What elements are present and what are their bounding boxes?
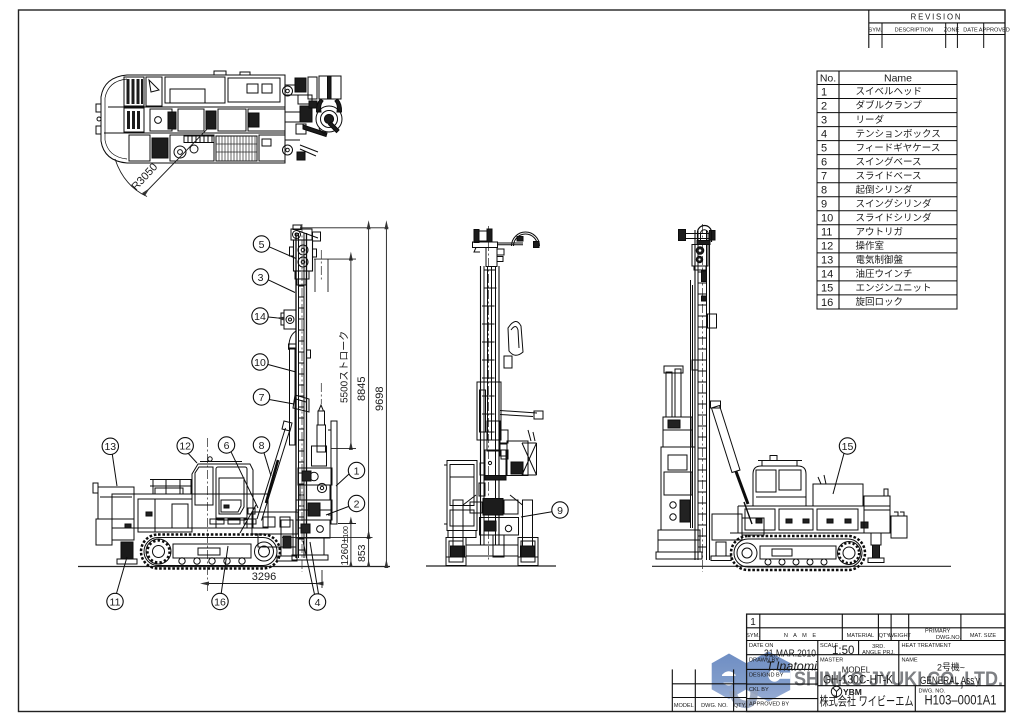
svg-text:1:50: 1:50 [832, 645, 854, 657]
svg-text:スイングベース: スイングベース [856, 156, 922, 168]
svg-text:7: 7 [259, 392, 265, 404]
svg-text:8845: 8845 [356, 377, 368, 401]
svg-text:8: 8 [259, 440, 265, 452]
svg-text:6: 6 [821, 156, 827, 168]
svg-text:12: 12 [821, 241, 833, 253]
svg-text:NAME: NAME [902, 658, 918, 664]
svg-text:14: 14 [821, 269, 833, 281]
svg-text:ANGLE PRJ.: ANGLE PRJ. [862, 650, 895, 656]
svg-text:DESCRIPTION: DESCRIPTION [895, 28, 933, 34]
svg-text:PRIMARY: PRIMARY [925, 629, 951, 635]
svg-text:10: 10 [821, 213, 833, 225]
svg-text:エンジンユニット: エンジンユニット [856, 283, 932, 294]
svg-text:スイベルヘッド: スイベルヘッド [856, 87, 923, 98]
svg-text:リーダ: リーダ [856, 114, 885, 126]
svg-text:3296: 3296 [252, 571, 276, 583]
svg-text:スイングシリンダ: スイングシリンダ [856, 198, 933, 210]
svg-text:5: 5 [259, 239, 265, 251]
svg-text:Name: Name [884, 73, 912, 85]
svg-text:5500ストローク: 5500ストローク [339, 331, 351, 403]
svg-text:スライドベース: スライドベース [856, 171, 922, 182]
svg-text:15: 15 [842, 441, 854, 453]
svg-text:HEAT TREATMENT: HEAT TREATMENT [902, 643, 952, 649]
svg-text:株式会社 ワイビーエム: 株式会社 ワイビーエム [820, 694, 914, 709]
svg-text:MAT. SIZE: MAT. SIZE [970, 633, 997, 639]
svg-text:T.Inatomi: T.Inatomi [766, 660, 818, 674]
svg-text:N A M E: N A M E [784, 633, 818, 639]
svg-text:MODEL: MODEL [842, 666, 871, 675]
svg-text:フィードギヤケース: フィードギヤケース [856, 143, 941, 154]
svg-text:4: 4 [821, 128, 827, 140]
svg-text:MODEL: MODEL [674, 703, 694, 709]
svg-text:MASTER: MASTER [820, 658, 843, 664]
svg-text:GENERAL Ass'y: GENERAL Ass'y [920, 675, 980, 687]
svg-text:16: 16 [214, 596, 226, 608]
svg-text:2号機~: 2号機~ [937, 662, 965, 674]
svg-text:No.: No. [820, 73, 836, 85]
svg-text:DWG.NO.: DWG.NO. [936, 635, 962, 641]
svg-text:13: 13 [821, 255, 833, 267]
svg-text:3: 3 [258, 272, 264, 284]
svg-text:DATE: DATE [963, 28, 978, 34]
svg-text:旋回ロック: 旋回ロック [856, 296, 904, 308]
svg-text:ダブルクランプ: ダブルクランプ [856, 100, 923, 112]
svg-text:APPROVED BY: APPROVED BY [749, 702, 789, 708]
svg-text:GH-130C-HT-K: GH-130C-HT-K [823, 675, 893, 687]
svg-text:11: 11 [821, 227, 832, 239]
svg-text:油圧ウインチ: 油圧ウインチ [856, 268, 913, 280]
svg-text:SYM.: SYM. [746, 633, 760, 639]
svg-text:5: 5 [821, 142, 827, 154]
svg-text:15: 15 [821, 283, 833, 295]
svg-text:13: 13 [104, 441, 116, 453]
svg-text:9698: 9698 [374, 387, 386, 411]
svg-text:H103–0001A1: H103–0001A1 [925, 692, 997, 708]
svg-text:1: 1 [821, 86, 827, 98]
svg-text:6: 6 [224, 440, 230, 452]
svg-text:SYM.: SYM. [869, 28, 883, 34]
svg-text:MATERIAL: MATERIAL [847, 633, 875, 639]
svg-text:853: 853 [356, 544, 368, 562]
svg-text:9: 9 [821, 199, 827, 211]
svg-text:QTY.: QTY. [734, 703, 747, 709]
svg-text:REVISION: REVISION [911, 12, 963, 21]
svg-text:9: 9 [557, 505, 563, 517]
svg-text:1: 1 [354, 465, 360, 477]
svg-text:電気制御盤: 電気制御盤 [856, 254, 904, 266]
svg-text:3: 3 [821, 114, 827, 126]
svg-text:2: 2 [354, 498, 360, 510]
svg-text:16: 16 [821, 297, 833, 309]
svg-text:WEIGHT: WEIGHT [889, 633, 912, 639]
svg-text:7: 7 [821, 171, 827, 183]
svg-text:DESIGND BY: DESIGND BY [749, 673, 784, 679]
svg-text:10: 10 [254, 357, 266, 369]
svg-text:14: 14 [254, 311, 266, 323]
svg-text:1: 1 [750, 617, 756, 628]
svg-text:4: 4 [315, 597, 321, 609]
svg-text:8: 8 [821, 185, 827, 197]
svg-text:操作室: 操作室 [856, 240, 885, 252]
svg-text:APPROVED: APPROVED [979, 28, 1010, 34]
svg-text:アウトリガ: アウトリガ [856, 227, 904, 238]
svg-text:DWG. NO.: DWG. NO. [701, 703, 728, 709]
svg-text:起倒シリンダ: 起倒シリンダ [856, 184, 914, 196]
svg-text:ZONE: ZONE [944, 28, 960, 34]
svg-text:CKL BY: CKL BY [749, 687, 769, 693]
svg-text:テンションボックス: テンションボックス [856, 129, 941, 140]
svg-text:2: 2 [821, 100, 827, 112]
svg-text:11: 11 [110, 596, 121, 608]
svg-text:12: 12 [179, 441, 191, 453]
svg-text:スライドシリンダ: スライドシリンダ [856, 212, 933, 224]
